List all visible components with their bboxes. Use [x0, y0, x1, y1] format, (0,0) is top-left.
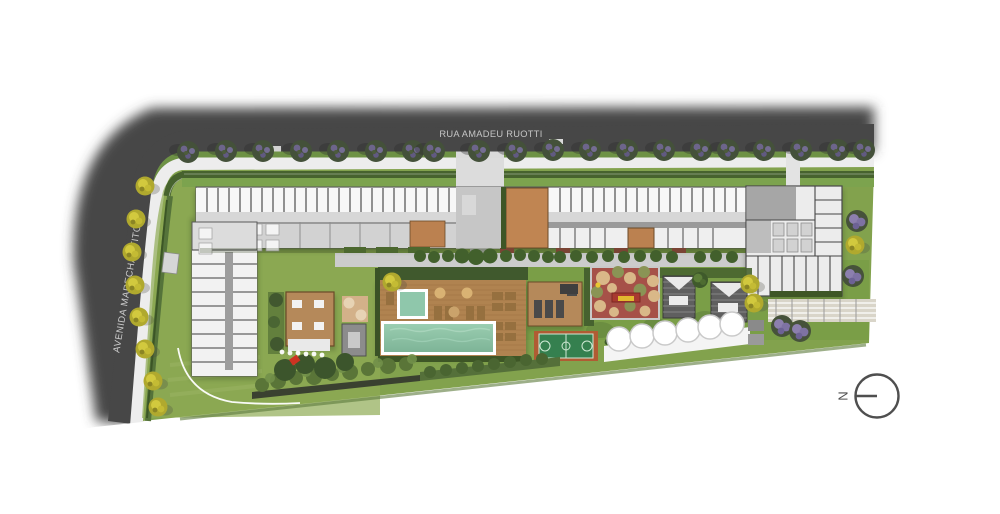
svg-text:N: N: [836, 391, 851, 400]
svg-text:RUA AMADEU RUOTTI: RUA AMADEU RUOTTI: [439, 129, 542, 139]
